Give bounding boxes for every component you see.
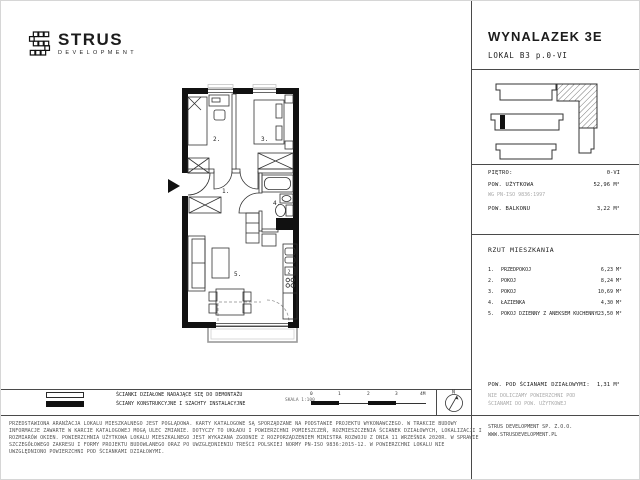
bed-double-icon <box>254 95 293 149</box>
room-name: ŁAZIENKA <box>501 300 601 306</box>
disclaimer-line: ROZMIARÓW OKIEN. POWIERZCHNIA UŻYTKOWA L… <box>9 435 479 441</box>
room-schedule-title: RZUT MIESZKANIA <box>488 246 554 254</box>
legend-swatch-structural-wall <box>46 401 84 407</box>
room-area: 23,50 M² <box>598 311 622 317</box>
balcony-area-row: POW. BALKONU 3,22 M² <box>488 206 620 212</box>
legend-swatch-partition-wall <box>46 392 84 398</box>
room-row-1: 1. PRZEDPOKÓJ 6,23 M² <box>488 267 622 273</box>
strus-logo-icon <box>28 31 51 56</box>
partition-walls <box>188 94 293 232</box>
wardrobe-icon <box>188 158 221 213</box>
scale-tick: 1 <box>338 392 341 397</box>
room-label-hall: 1. <box>222 188 229 195</box>
current-building-marker <box>500 115 505 129</box>
scale-tick: 3 <box>395 392 398 397</box>
room-row-2: 2. POKÓJ 8,24 M² <box>488 278 622 284</box>
footer-website: WWW.STRUSDEVELOPMENT.PL <box>488 432 557 438</box>
partition-note-2: ŚCIANAMI DO POW. UŻYTKOWEJ <box>488 401 566 407</box>
room-row-4: 4. ŁAZIENKA 4,30 M² <box>488 300 622 306</box>
footer-company: STRUS DEVELOPMENT SP. Z.O.O. <box>488 424 572 430</box>
partition-note-1: NIE DOLICZAMY POWIERZCHNI POD <box>488 393 575 399</box>
north-letter: N <box>452 390 455 396</box>
room-area: 8,24 M² <box>601 278 622 284</box>
disclaimer-line: UWZGLĘDNIONO POWIERZCHNI POD ŚCIANKAMI D… <box>9 449 165 455</box>
area-norm: WG PN-ISO 9836:1997 <box>488 192 545 198</box>
room-label-room2: 2. <box>213 136 220 143</box>
building-location-map <box>487 75 617 161</box>
entrance-arrow-icon <box>168 179 180 193</box>
divider-sitemap <box>471 164 640 165</box>
room-row-3: 3. POKÓJ 10,69 M² <box>488 289 622 295</box>
balcony-value: 3,22 M² <box>597 206 620 212</box>
room-name: PRZEDPOKÓJ <box>501 267 601 273</box>
room-label-bath: 4. <box>273 200 280 207</box>
divider-details <box>471 234 640 235</box>
wardrobe-icon <box>258 153 293 169</box>
room-area: 10,69 M² <box>598 289 622 295</box>
balcony <box>208 300 297 342</box>
legend-label-partition-wall: ŚCIANKI DZIAŁOWE NADAJĄCE SIĘ DO DEMONTA… <box>116 392 242 398</box>
partition-label: POW. POD ŚCIANAMI DZIAŁOWYMI: <box>488 382 590 388</box>
desk-icon <box>209 95 229 120</box>
room-label-room3: 3. <box>261 136 268 143</box>
floor-row: PIĘTRO: 0-VI <box>488 170 620 176</box>
room-no: 4. <box>488 300 501 306</box>
project-title: WYNALAZEK 3E <box>488 29 603 44</box>
bed-single-icon <box>188 97 207 145</box>
room-label-living: 5. <box>234 271 241 278</box>
scale-bar-segment <box>311 401 339 405</box>
adjacent-building-leg <box>579 128 594 153</box>
room-no: 3. <box>488 289 501 295</box>
catalog-card-page: STRUS DEVELOPMENT WYNALAZEK 3E LOKAL B3 … <box>0 0 640 480</box>
divider-footer <box>1 415 640 416</box>
room-row-5: 5. POKÓJ DZIENNY Z ANEKSEM KUCHENNYM 23,… <box>488 311 622 317</box>
coffee-table-icon <box>212 248 229 278</box>
usable-area-label: POW. UŻYTKOWA <box>488 182 534 188</box>
disclaimer-line: PRZEDSTAWIONA ARANŻACJA LOKALU MIESZKALN… <box>9 421 457 427</box>
unit-id: LOKAL B3 p.0-VI <box>488 51 568 60</box>
logo-brand: STRUS <box>58 31 137 48</box>
stove-zone-label: 2 <box>288 270 291 276</box>
usable-area-value: 52,96 M² <box>594 182 621 188</box>
area-norm-row: WG PN-ISO 9836:1997 <box>488 192 620 198</box>
sofa-icon <box>188 236 205 291</box>
partition-area-row: POW. POD ŚCIANAMI DZIAŁOWYMI: 1,31 M² <box>488 382 620 388</box>
building-outline-1 <box>496 84 556 100</box>
building-outline-3 <box>496 144 556 159</box>
room-no: 5. <box>488 311 501 317</box>
north-arrow: N <box>437 387 470 414</box>
disclaimer-line: INFORMACJE ZAWARTE W KARCIE KATALOGOWEJ … <box>9 428 482 434</box>
sink-icon <box>280 194 293 203</box>
room-name: POKÓJ <box>501 289 598 295</box>
divider-legend-top <box>1 389 471 390</box>
room-name: POKÓJ DZIENNY Z ANEKSEM KUCHENNYM <box>501 311 598 317</box>
divider-header <box>471 69 640 70</box>
room-area: 6,23 M² <box>601 267 622 273</box>
scale-tick: 2 <box>367 392 370 397</box>
partition-value: 1,31 M² <box>597 382 620 388</box>
usable-area-row: POW. UŻYTKOWA 52,96 M² <box>488 182 620 188</box>
floor-plan: 2 1. 2. 3. 4. 5. <box>166 81 311 346</box>
logo-subtitle: DEVELOPMENT <box>58 50 137 56</box>
room-area: 4,30 M² <box>601 300 622 306</box>
adjacent-building-hatched <box>557 84 597 128</box>
panel-divider-vertical <box>471 1 472 480</box>
room-no: 1. <box>488 267 501 273</box>
entrance-door-icon <box>168 173 210 195</box>
room-no: 2. <box>488 278 501 284</box>
balcony-label: POW. BALKONU <box>488 206 530 212</box>
scale-tick: 4M <box>420 392 425 397</box>
scale-bar-segment <box>368 401 396 405</box>
installation-shaft <box>276 218 293 230</box>
disclaimer-line: SZCZEGÓŁOWEGO ZAKRESU I FORMY PROJEKTU B… <box>9 442 444 448</box>
legend-label-structural-wall: ŚCIANY KONSTRUKCYJNE I SZACHTY INSTALACY… <box>116 401 245 407</box>
logo: STRUS DEVELOPMENT <box>28 31 137 56</box>
floor-label: PIĘTRO: <box>488 170 513 176</box>
floor-value: 0-VI <box>607 170 620 176</box>
scale-tick: 0 <box>310 392 313 397</box>
bathtub-icon <box>262 175 293 192</box>
chair-icon <box>214 110 225 120</box>
room-name: POKÓJ <box>501 278 601 284</box>
